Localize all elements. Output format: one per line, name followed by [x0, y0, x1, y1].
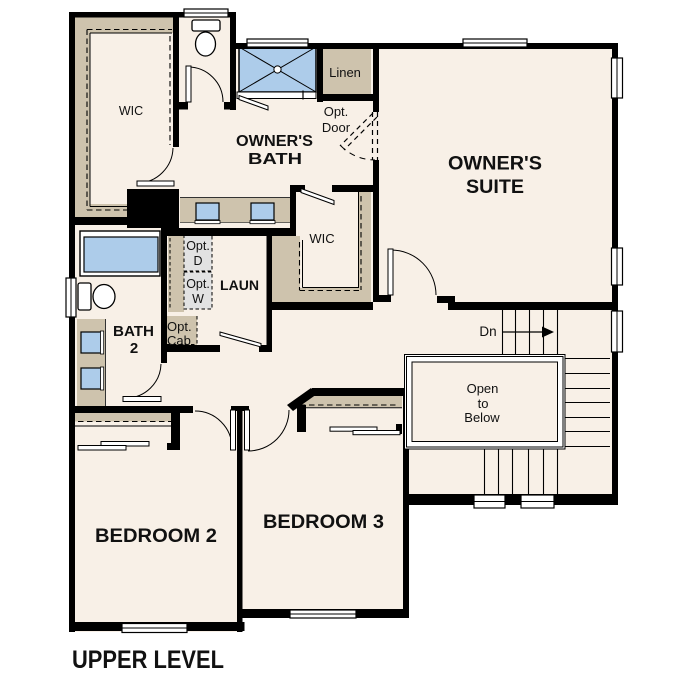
- svg-text:Door: Door: [322, 120, 351, 135]
- svg-text:Below: Below: [464, 410, 500, 425]
- svg-text:LAUN: LAUN: [220, 278, 259, 293]
- svg-text:2: 2: [130, 340, 138, 357]
- svg-text:Open: Open: [467, 381, 499, 396]
- svg-text:BEDROOM 2: BEDROOM 2: [95, 525, 217, 547]
- svg-text:W: W: [192, 292, 204, 306]
- svg-text:Opt.: Opt.: [186, 277, 210, 291]
- svg-text:UPPER LEVEL: UPPER LEVEL: [72, 646, 224, 674]
- svg-text:BATH: BATH: [113, 323, 154, 340]
- svg-text:Opt.: Opt.: [167, 319, 192, 334]
- svg-text:Cab: Cab: [167, 333, 191, 348]
- svg-text:D: D: [193, 254, 202, 268]
- svg-text:SUITE: SUITE: [466, 176, 524, 198]
- svg-text:to: to: [478, 396, 489, 411]
- svg-text:Opt.: Opt.: [324, 104, 349, 119]
- svg-text:BATH: BATH: [248, 151, 302, 168]
- svg-text:WIC: WIC: [309, 231, 334, 246]
- svg-text:Linen: Linen: [329, 65, 361, 80]
- svg-text:Dn: Dn: [479, 324, 496, 339]
- svg-text:WIC: WIC: [119, 104, 143, 118]
- svg-text:OWNER'S: OWNER'S: [236, 133, 313, 150]
- svg-text:OWNER'S: OWNER'S: [448, 153, 542, 175]
- svg-text:Opt.: Opt.: [186, 239, 210, 253]
- svg-text:BEDROOM 3: BEDROOM 3: [263, 511, 384, 533]
